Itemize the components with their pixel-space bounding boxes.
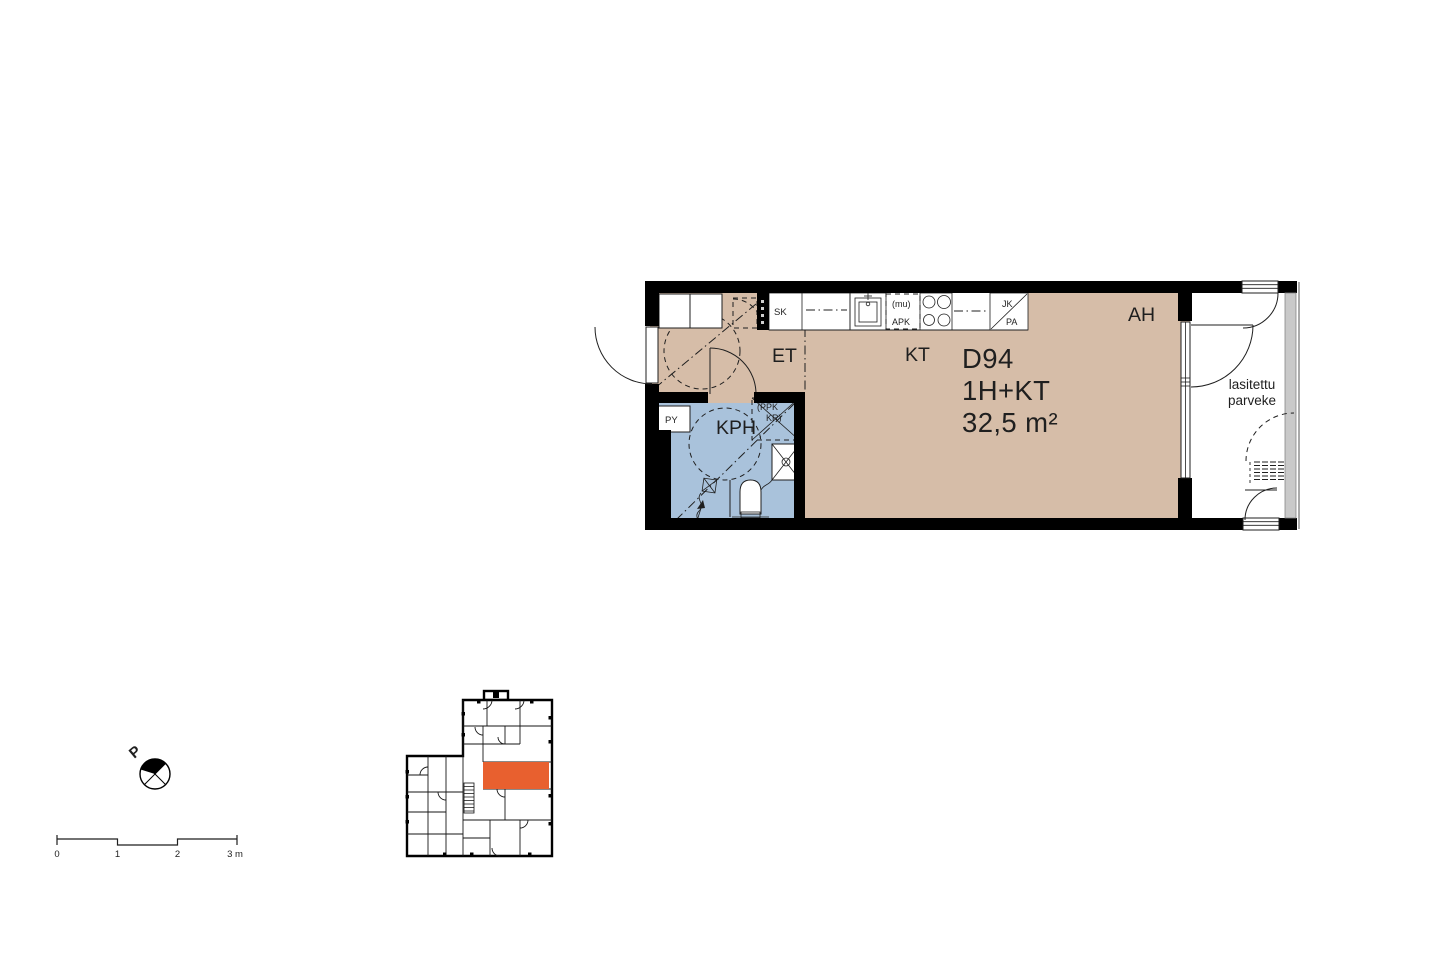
room-label-bathroom: KPH [716,417,756,439]
key-plan-stairs [464,783,474,813]
key-plan-highlighted-unit [483,762,549,789]
label-freezer: PA [1006,317,1017,327]
duct-shaft [659,430,671,518]
label-washer: (PPK [757,402,778,412]
scale-tick-2: 2 [175,849,180,860]
label-dryer: KR) [766,413,782,423]
scale-bar: 0 1 2 3 m [54,835,243,860]
wardrobe-cabinet [659,294,690,328]
scale-tick-3: 3 m [227,849,243,860]
label-fridge: JK [1002,299,1013,309]
apartment-plan [595,281,1285,530]
folding-glazing-symbol [1250,462,1284,483]
bathroom-door-threshold [708,392,754,403]
label-laundry: PY [665,415,678,426]
drawing: D94 1H+KT 32,5 m² ET KT AH KPH SK PY (mu… [0,0,1440,959]
unit-id: D94 [962,343,1014,374]
unit-layout: 1H+KT [962,375,1050,406]
entry-door [595,327,658,384]
north-arrow: P [126,743,170,789]
label-closet: SK [774,307,787,318]
scale-tick-0: 0 [54,849,59,860]
room-label-living: AH [1128,304,1155,326]
key-plan [406,691,553,856]
north-label: P [126,743,145,762]
label-microwave: (mu) [892,299,911,309]
floor-plan-page: D94 1H+KT 32,5 m² ET KT AH KPH SK PY (mu… [0,0,1440,959]
unit-area: 32,5 m² [962,407,1058,438]
label-dishwasher: APK [892,317,910,327]
room-label-entrance: ET [772,345,797,367]
scale-tick-1: 1 [115,849,120,860]
duct-strip [757,293,769,330]
room-label-kitchen: KT [905,344,930,366]
balcony-glazing-strip [1285,293,1296,518]
wardrobe-cabinet [690,294,722,328]
balcony-label-line2: parveke [1228,393,1276,408]
balcony-label-line1: lasitettu [1229,377,1276,392]
